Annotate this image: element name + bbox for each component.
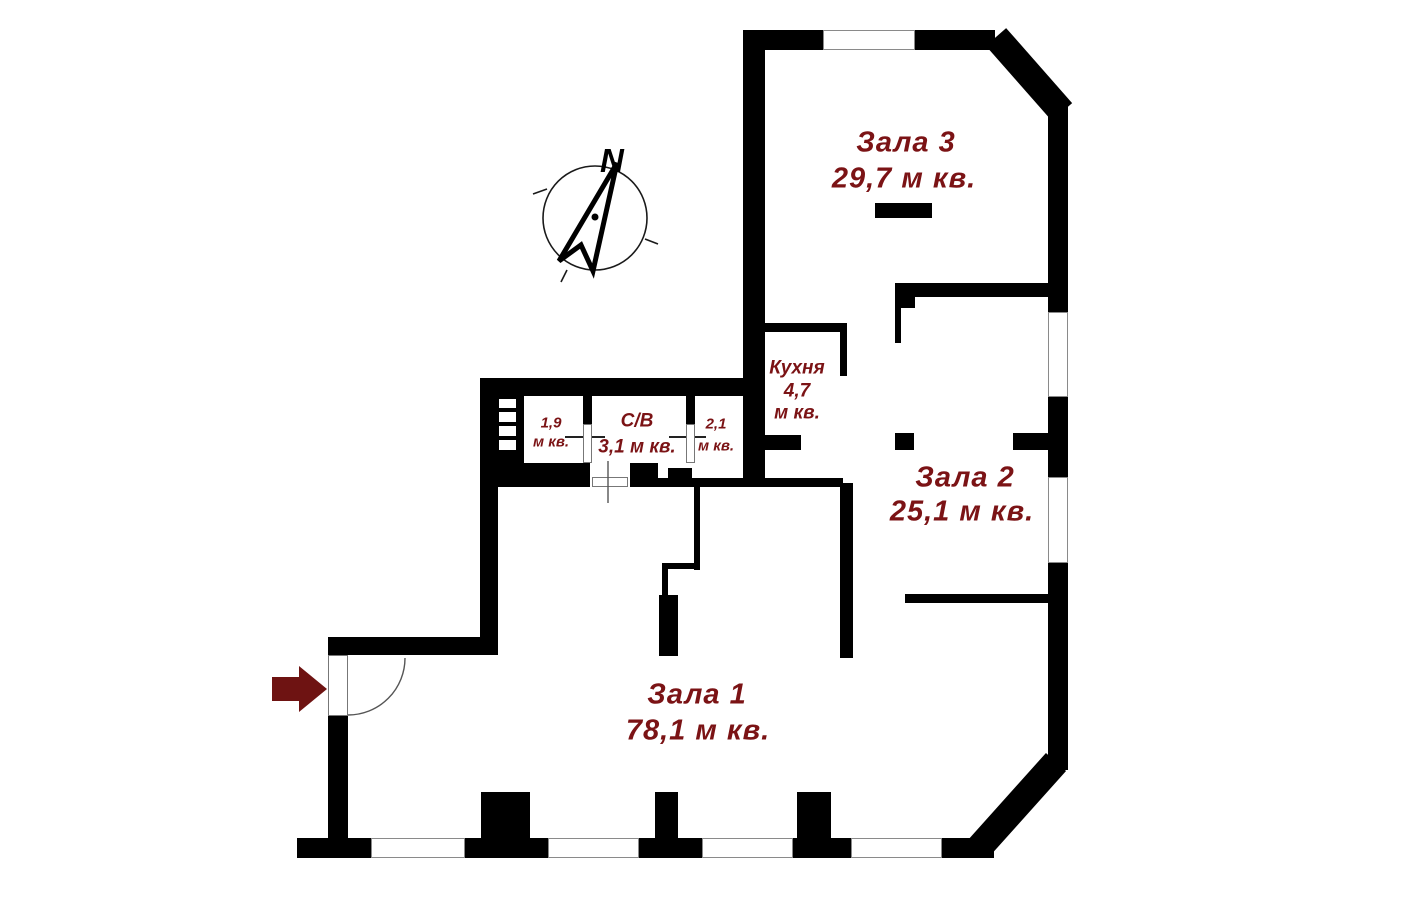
compass-tick [561, 270, 567, 282]
wall-segment [793, 838, 851, 858]
compass-tick [645, 239, 658, 244]
window-symbol [1048, 477, 1068, 563]
wall-segment [328, 637, 498, 655]
wall-segment [942, 838, 994, 858]
wall-segment [840, 483, 853, 658]
wall-segment [686, 396, 695, 424]
wall-segment [480, 378, 743, 396]
wall-segment [840, 332, 847, 376]
door-leaf [583, 424, 592, 463]
wall-segment [583, 396, 592, 424]
room-label-kitchen-unit: м кв. [774, 404, 820, 423]
window-symbol [823, 30, 915, 50]
wall-segment [743, 30, 823, 50]
wall-segment [763, 435, 801, 450]
window-symbol [1048, 312, 1068, 397]
hatch-slot [499, 440, 516, 450]
wall-segment [328, 716, 348, 838]
room-label-bathroom-name: С/В [621, 412, 654, 431]
wall-segment [895, 308, 901, 343]
room-label-zala1-name: Зала 1 [647, 681, 746, 710]
wall-segment [659, 595, 678, 656]
pillar [797, 792, 831, 838]
room-label-storage-right-area: 2,1 [706, 417, 727, 432]
compass-circle [543, 166, 647, 270]
wall-segment [662, 563, 668, 596]
compass-icon: N [533, 142, 658, 282]
window-symbol [702, 838, 793, 858]
compass-tick [533, 189, 547, 194]
wall-segment [895, 283, 1068, 297]
door-opening-entrance [328, 655, 348, 716]
wall-segment [915, 30, 995, 50]
room-label-zala2-area: 25,1 м кв. [890, 498, 1034, 527]
window-symbol [371, 838, 465, 858]
wall-segment [1013, 433, 1068, 450]
hatch-slot [499, 412, 516, 422]
pillar [895, 433, 914, 450]
room-label-kitchen-area: 4,7 [784, 382, 810, 401]
pillar [481, 792, 530, 838]
wall-segment [668, 468, 692, 487]
north-label: N [600, 142, 625, 179]
wall-segment [694, 483, 700, 570]
wall-segment [480, 378, 498, 655]
door-arc-entrance [348, 658, 405, 715]
compass-center-dot [592, 214, 599, 221]
wall-segment [639, 838, 702, 858]
entrance-arrow-icon [272, 666, 327, 712]
wall-segment [465, 838, 548, 858]
wall-segment [743, 30, 765, 487]
room-label-zala1-area: 78,1 м кв. [626, 717, 770, 746]
hatch-slot [499, 399, 516, 408]
room-label-bathroom-area: 3,1 м кв. [598, 438, 675, 457]
room-label-zala3-name: Зала 3 [856, 129, 955, 158]
wall-diagonal-bottom-right [978, 762, 1056, 849]
radiator-symbol [875, 203, 932, 218]
room-label-storage-left-area: 1,9 [541, 416, 562, 431]
room-label-storage-right-unit: м кв. [698, 439, 734, 454]
room-label-zala3-area: 29,7 м кв. [832, 165, 976, 194]
wall-segment [630, 463, 658, 487]
wall-segment [1048, 100, 1068, 312]
room-label-zala2-name: Зала 2 [915, 464, 1014, 493]
hatch-slot [499, 426, 516, 436]
window-symbol [851, 838, 942, 858]
floor-plan: Зала 3 29,7 м кв. Зала 2 25,1 м кв. Зала… [0, 0, 1427, 900]
room-label-kitchen-name: Кухня [769, 359, 824, 378]
wall-segment [905, 594, 1068, 603]
wall-segment [297, 838, 371, 858]
wall-segment [895, 283, 915, 308]
wall-segment [480, 463, 590, 487]
north-arrow-icon [559, 163, 617, 271]
room-label-storage-left-unit: м кв. [533, 435, 569, 450]
window-symbol [548, 838, 639, 858]
pillar [655, 792, 678, 838]
wall-segment [763, 323, 847, 332]
door-leaf [686, 424, 695, 463]
door-leaf-bathroom [592, 477, 628, 487]
